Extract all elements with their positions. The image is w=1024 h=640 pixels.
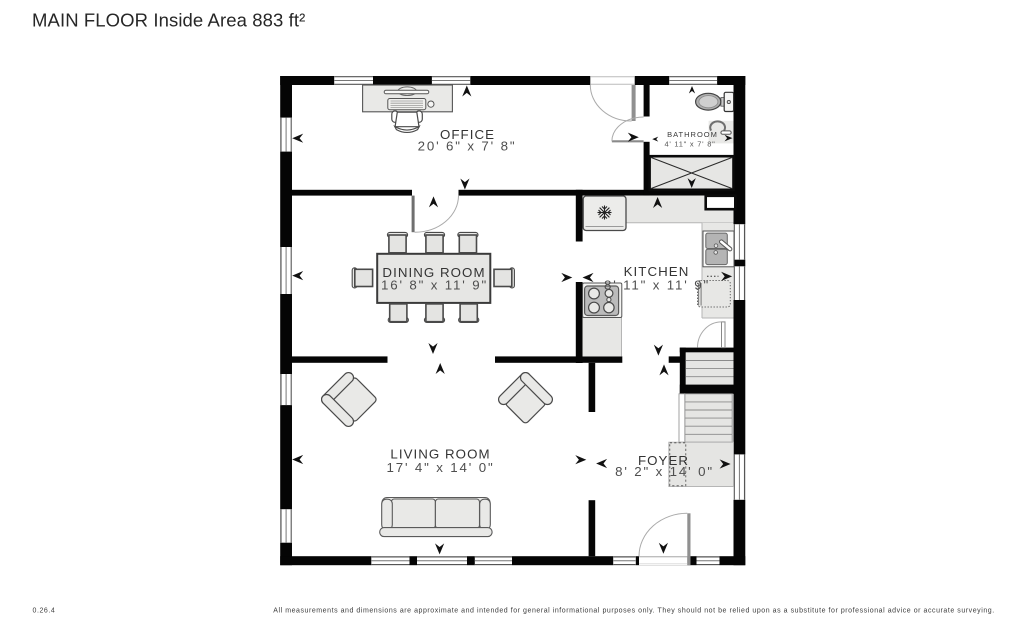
svg-text:0.26.4: 0.26.4 [33, 607, 56, 614]
svg-text:8' 11" x 11' 9": 8' 11" x 11' 9" [604, 278, 710, 293]
svg-text:16' 8" x 11' 9": 16' 8" x 11' 9" [381, 278, 488, 293]
svg-text:8' 2" x 14' 0": 8' 2" x 14' 0" [615, 464, 714, 479]
svg-text:BATHROOM: BATHROOM [667, 130, 718, 139]
svg-text:17' 4" x 14' 0": 17' 4" x 14' 0" [386, 460, 494, 475]
svg-text:MAIN FLOOR Inside Area 883 ft²: MAIN FLOOR Inside Area 883 ft² [32, 10, 305, 31]
svg-text:4' 11" x 7' 8": 4' 11" x 7' 8" [664, 139, 715, 148]
svg-text:20' 6" x 7' 8": 20' 6" x 7' 8" [418, 139, 517, 154]
svg-text:All measurements and dimension: All measurements and dimensions are appr… [273, 607, 994, 614]
